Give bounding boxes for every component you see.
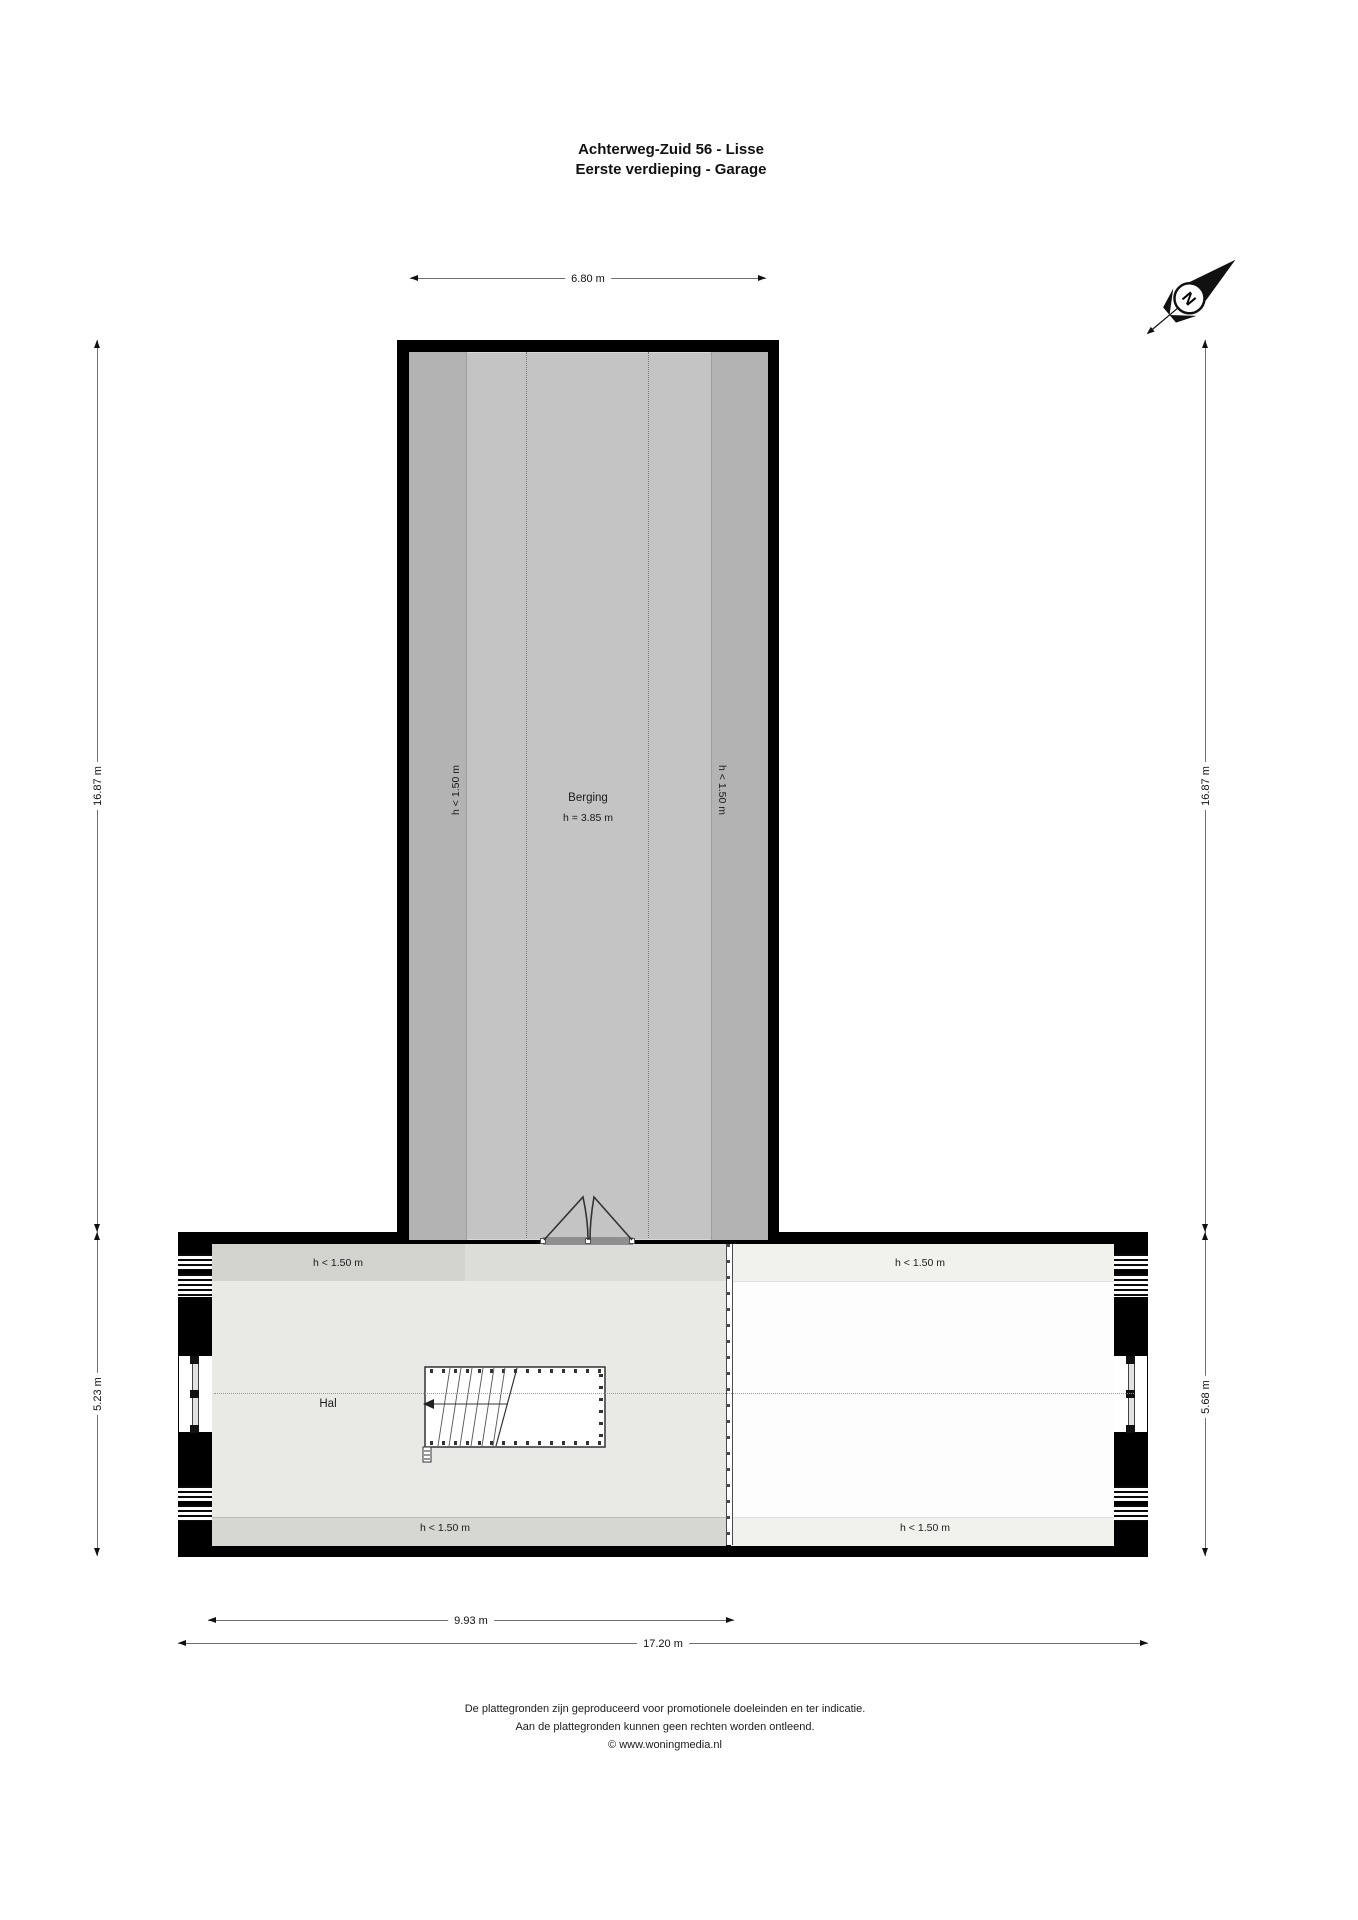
window-icon	[179, 1356, 212, 1432]
window-icon	[1114, 1356, 1147, 1432]
room-label-hal: Hal	[319, 1398, 336, 1410]
window-frame-mark	[190, 1356, 199, 1364]
window-icon	[1114, 1486, 1148, 1501]
window-frame-mark	[1126, 1390, 1135, 1398]
dimension-label: 5.68 m	[1200, 1376, 1212, 1418]
window-icon	[1114, 1274, 1148, 1297]
roof-centre-dotted-line	[214, 1393, 1134, 1394]
arrowhead-right-icon	[1140, 1640, 1148, 1646]
arrowhead-down-icon	[94, 1548, 100, 1556]
compass-north-icon: N	[1133, 243, 1253, 361]
arrowhead-up-icon	[1202, 1232, 1208, 1240]
wall-berging-bottom-left	[409, 1240, 543, 1244]
dimension-label: 5.23 m	[92, 1373, 104, 1415]
hal-low-label-top: h < 1.50 m	[313, 1257, 363, 1269]
arrowhead-left-icon	[410, 275, 418, 281]
window-icon	[178, 1254, 212, 1270]
disclaimer: De plattegronden zijn geproduceerd voor …	[465, 1700, 866, 1754]
arrowhead-up-icon	[1202, 340, 1208, 348]
berging-low-label-right: h < 1.50 m	[716, 765, 728, 815]
window-icon	[178, 1486, 212, 1501]
title-floor: Eerste verdieping - Garage	[576, 160, 767, 180]
window-icon	[1114, 1505, 1148, 1521]
title-address: Achterweg-Zuid 56 - Lisse	[576, 140, 767, 160]
wall-berging-bottom-right	[633, 1240, 767, 1244]
window-icon	[1114, 1254, 1148, 1270]
window-frame-mark	[1126, 1356, 1135, 1364]
wall-bottom	[178, 1545, 1148, 1557]
arrowhead-left-icon	[178, 1640, 186, 1646]
arrowhead-down-icon	[1202, 1548, 1208, 1556]
berging-low-label-left: h < 1.50 m	[450, 765, 462, 815]
arrowhead-down-icon	[94, 1224, 100, 1232]
roof-height-dotted-line	[526, 352, 527, 1238]
attic-right-floor	[731, 1244, 1114, 1545]
roof-height-dotted-line	[648, 352, 649, 1238]
hal-low-label-bottom: h < 1.50 m	[420, 1522, 470, 1534]
wall-top	[397, 340, 779, 352]
room-label-berging: Berging	[568, 792, 608, 804]
wall-right	[767, 340, 779, 1244]
berging-clear-height-label: h = 3.85 m	[563, 812, 613, 824]
glass-partition	[726, 1244, 733, 1545]
staircase	[420, 1358, 615, 1470]
window-icon	[178, 1274, 212, 1297]
window-icon	[178, 1505, 212, 1521]
dimension-label: 16.87 m	[1200, 762, 1212, 810]
window-frame-mark	[190, 1390, 199, 1398]
dimension-label: 16.87 m	[92, 762, 104, 810]
disclaimer-line2: Aan de plattegronden kunnen geen rechten…	[465, 1718, 866, 1736]
arrowhead-up-icon	[94, 1232, 100, 1240]
dimension-label: 17.20 m	[637, 1638, 689, 1650]
arrowhead-right-icon	[726, 1617, 734, 1623]
dimension-label: 9.93 m	[448, 1615, 494, 1627]
dimension-label: 6.80 m	[565, 273, 611, 285]
arrowhead-right-icon	[758, 275, 766, 281]
disclaimer-line1: De plattegronden zijn geproduceerd voor …	[465, 1700, 866, 1718]
window-frame-mark	[1126, 1425, 1135, 1433]
arrowhead-left-icon	[208, 1617, 216, 1623]
wall-left	[397, 340, 409, 1244]
window-frame-mark	[190, 1425, 199, 1433]
arrowhead-down-icon	[1202, 1224, 1208, 1232]
attic-right-low-label-top: h < 1.50 m	[895, 1257, 945, 1269]
double-door-swing-icon	[533, 1188, 643, 1244]
arrowhead-up-icon	[94, 340, 100, 348]
copyright: © www.woningmedia.nl	[465, 1736, 866, 1754]
page-title: Achterweg-Zuid 56 - Lisse Eerste verdiep…	[576, 140, 767, 180]
attic-right-low-label-bottom: h < 1.50 m	[900, 1522, 950, 1534]
floorplan-page: Achterweg-Zuid 56 - Lisse Eerste verdiep…	[0, 0, 1358, 1920]
